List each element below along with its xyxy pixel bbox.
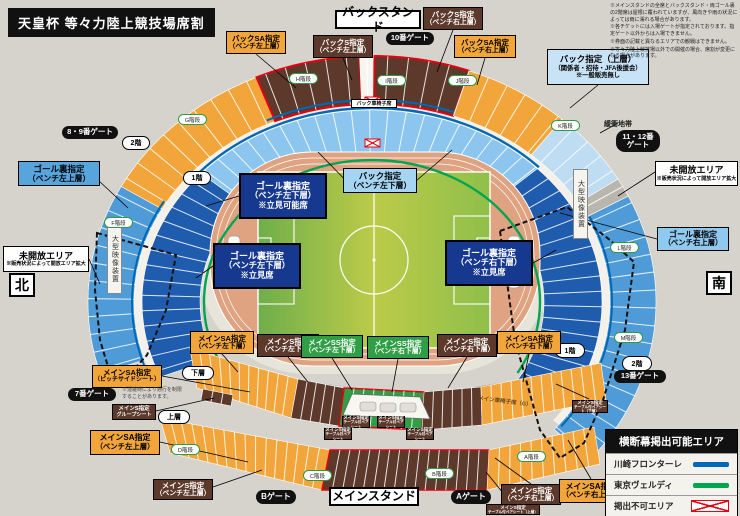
label-main-sa-left-upper: メインSA指定（ベンチ左上層） (90, 430, 160, 455)
label-unopened-left-line: 未開放エリア (19, 251, 73, 262)
note-line: ※等々力陸上競技場以外での開催の場合、席割が変更になる場合があります。 (610, 47, 738, 61)
stair-m-label: M階段 (621, 334, 637, 342)
banner-legend: 横断幕掲出可能エリア 川崎フロンターレ 東京ヴェルディ 掲出不可エリア (605, 429, 738, 516)
gate-8-9: 8・9番ゲート (62, 126, 118, 139)
label-unopened-right-line: 未開放エリア (669, 165, 723, 176)
label-back-sa-left-upper-line: （ベンチ左上層） (228, 43, 283, 51)
stair-a: A階段 (517, 451, 546, 462)
stair-i: I階段 (377, 75, 406, 86)
label-main-sa-right-lower-line: （ベンチ右下層） (501, 343, 556, 351)
stair-d: D階段 (171, 444, 200, 455)
stair-l: L階段 (610, 242, 639, 253)
label-back-lower-line: （ベンチ左下層） (349, 181, 412, 190)
stair-h: H階段 (289, 73, 318, 84)
gate-a: Aゲート (451, 490, 491, 504)
buffer-zone-label: 緩衝地帯 (604, 119, 632, 129)
stair-j: J階段 (448, 75, 477, 86)
label-goal-upper-left: ゴール裏指定（ベンチ左上層） (18, 161, 100, 186)
label-back-lower-line: バック指定 (359, 171, 402, 181)
label-unopened-left-line: ※販売状況によって開放エリア拡大 (6, 261, 86, 267)
gate-7: 7番ゲート (68, 388, 116, 401)
label-main-sa-left-upper-line: （ベンチ左上層） (96, 443, 155, 452)
label-back-s-left-upper: バックS指定（ベンチ左上層） (313, 35, 373, 58)
stair-k-label: K階段 (558, 122, 573, 130)
label-goal-upper-left-line: ゴール裏指定 (33, 164, 84, 174)
label-goal-lower-left-a-line: ※立見可能席 (258, 201, 308, 211)
stair-j-label: J階段 (456, 77, 470, 85)
label-goal-lower-right: ゴール裏指定（ベンチ右下層）※立見席 (445, 240, 533, 286)
note-line: ※券面の記載と異なるエリアでの観戦はできません。 (610, 39, 738, 46)
label-back-s-right-upper-line: （ベンチ右上層） (425, 19, 480, 27)
buffer-zone-text: 緩衝地帯 (604, 121, 632, 128)
label-back-sa-right-upper-line: バックSA指定 (461, 38, 509, 47)
gate-11-12: 11・12番ゲート (616, 130, 660, 152)
label-main-s-left-upper: メインS指定（ベンチ左上層） (153, 479, 213, 500)
video-board-right-label: 大型映像装置 (576, 180, 586, 228)
label-main-sa-right-lower-line: メインSA指定 (505, 334, 553, 343)
stair-d-label: D階段 (178, 446, 193, 454)
label-main-sa-left-lower-line: （ベンチ左下層） (194, 343, 249, 351)
label-unopened-right: 未開放エリア※販売状況によって開放エリア拡大 (655, 161, 738, 186)
legend-prohibited-label: 掲出不可エリア (614, 500, 674, 512)
gate-b-line: Bゲート (261, 493, 291, 502)
label-goal-upper-right-line: （ベンチ右上層） (664, 239, 723, 248)
label-main-ss-left-lower-line: （ベンチ左下層） (304, 347, 359, 355)
tier-1f-right-label: 1階 (565, 346, 576, 356)
label-main-sa-left-lower-line: メインSA指定 (198, 334, 246, 343)
label-main-s-left-upper-line: メインS指定 (162, 481, 205, 490)
label-compass-south-line: 南 (712, 275, 726, 292)
label-goal-upper-right: ゴール裏指定（ベンチ右上層） (657, 227, 729, 251)
frontale-line-swatch (693, 462, 729, 467)
legend-verdy-label: 東京ヴェルディ (614, 479, 673, 491)
label-main-ss-left-lower: メインSS指定（ベンチ左下層） (301, 335, 363, 358)
label-back-sa-left-upper-line: バックSA指定 (232, 34, 280, 43)
tier-lower-label: 下層 (191, 368, 205, 378)
tier-2f-left: 2階 (122, 136, 150, 150)
label-main-s-pair-lower-right: メインS指定テーブル付ペアシート（下層） (572, 400, 608, 413)
no-banner-mark (365, 139, 380, 147)
stair-a-label: A階段 (524, 453, 539, 461)
legend-row-frontale: 川崎フロンターレ (606, 453, 737, 474)
tier-1f-left: 1階 (183, 171, 211, 185)
label-back-lower: バック指定（ベンチ左下層） (343, 168, 417, 193)
label-main-s-group: メインS指定グループシート (112, 404, 156, 420)
label-back-wheelchair-line: バック車椅子席 (356, 101, 391, 107)
gate-a-line: Aゲート (456, 493, 486, 502)
label-back-s-left-upper-line: （ベンチ左上層） (315, 47, 370, 55)
label-goal-lower-left-b: ゴール裏指定（ベンチ左下層）※立見席 (213, 243, 301, 289)
vip-room (360, 402, 376, 411)
label-main-s-pair-lower-right-line: テーブル付ペアシート（下層） (573, 405, 607, 414)
stair-c-label: C階段 (310, 472, 325, 480)
note-line: ※メインスタンドの全席とバックスタンド・両ゴール裏の2階席は屋根に覆われています… (610, 3, 738, 23)
label-goal-lower-left-a-line: （ベンチ左下層） (250, 191, 316, 201)
label-main-s-pair-3-line: テーブル付ペアシート (325, 432, 351, 441)
prohibited-crosshatch-swatch (691, 500, 729, 512)
stair-h-label: H階段 (296, 75, 311, 83)
label-main-s-pair-2-line: テーブル付ペアシート (378, 420, 404, 429)
page-title: 天皇杯 等々力陸上競技場席割 (8, 8, 215, 37)
label-backstand-line: バックスタンド (337, 5, 419, 34)
legend-frontale-label: 川崎フロンターレ (614, 458, 682, 470)
tier-upper: 上層 (158, 410, 190, 424)
congestion-note-line: することがあります。 (122, 394, 182, 401)
label-compass-south: 南 (706, 271, 732, 295)
legend-row-prohibited: 掲出不可エリア (606, 495, 737, 516)
label-main-s-pair-2: メインS指定テーブル付ペアシート (377, 416, 405, 428)
label-main-s-left-upper-line: （ベンチ左上層） (155, 490, 210, 498)
video-board-left: 大型映像装置 (107, 224, 122, 294)
label-mainstand-line: メインスタンド (332, 489, 416, 503)
label-main-ss-right-lower-line: （ベンチ右下層） (370, 348, 425, 356)
label-main-s-pair-upper-line: テーブル付ペアシート（上層） (488, 510, 538, 514)
label-back-sa-right-upper: バックSA指定（ベンチ右上層） (454, 35, 516, 58)
label-main-s-right-lower-line: （ベンチ右下層） (439, 346, 494, 354)
label-goal-lower-left-a-line: ゴール裏指定 (256, 181, 310, 192)
stair-g-label: G階段 (185, 116, 200, 124)
label-main-ss-right-lower: メインSS指定（ベンチ右下層） (367, 336, 429, 359)
vip-room (400, 403, 416, 412)
label-main-s-right-upper-line: メインS指定 (510, 486, 553, 495)
tier-1f-left-label: 1階 (192, 173, 203, 183)
vip-room (380, 403, 396, 412)
label-main-ss-left-lower-line: メインSS指定 (308, 338, 356, 347)
label-main-sa-pitchside-line: （ピッチサイドシート） (94, 377, 160, 384)
label-goal-lower-right-line: ※立見席 (472, 268, 505, 278)
tier-upper-label: 上層 (167, 412, 181, 422)
label-main-s-group-line: グループシート (116, 412, 151, 418)
gate-11-12-line: ゲート (627, 141, 650, 149)
tier-2f-right-label: 2階 (632, 359, 643, 369)
label-goal-lower-left-a: ゴール裏指定（ベンチ左下層）※立見可能席 (239, 173, 327, 219)
gate-10: 10番ゲート (386, 32, 434, 45)
stair-k: K階段 (551, 120, 580, 131)
label-back-upper-reserved-line: （関係者・招待・JFA後援会） (554, 65, 641, 73)
gate-8-9-line: 8・9番ゲート (67, 128, 113, 136)
label-mainstand: メインスタンド (329, 487, 419, 506)
label-goal-lower-left-b-line: ※立見席 (240, 271, 273, 281)
stair-g: G階段 (178, 114, 207, 125)
stair-m: M階段 (614, 332, 643, 343)
label-goal-lower-left-b-line: （ベンチ左下層） (224, 261, 290, 271)
label-back-sa-left-upper: バックSA指定（ベンチ左上層） (226, 31, 286, 54)
stair-b: B階段 (425, 468, 454, 479)
label-main-s-right-upper-line: （ベンチ右上層） (503, 495, 558, 503)
tier-2f-left-label: 2階 (131, 138, 142, 148)
stair-l-label: L階段 (617, 244, 631, 252)
label-goal-lower-right-line: ゴール裏指定 (462, 248, 516, 259)
tier-2f-right: 2階 (622, 356, 652, 371)
stair-b-label: B階段 (432, 470, 447, 478)
gate-13: 13番ゲート (614, 370, 666, 383)
congestion-note: ※混雑時により通行を制限することがあります。 (122, 387, 182, 400)
label-main-sa-pitchside: メインSA指定（ピッチサイドシート） (92, 365, 162, 388)
label-unopened-right-line: ※販売状況によって開放エリア拡大 (657, 176, 737, 182)
label-backstand: バックスタンド (335, 10, 421, 29)
leader-line (618, 172, 655, 196)
note-line: ※各チケットには入場ゲートが指定されております。指定ゲート以外からは入場できませ… (610, 24, 738, 38)
notes-block: ※メインスタンドの全席とバックスタンド・両ゴール裏の2階席は屋根に覆われています… (610, 3, 738, 61)
label-main-s-pair-3: メインS指定テーブル付ペアシート (324, 428, 352, 440)
label-main-sa-left-lower: メインSA指定（ベンチ左下層） (190, 331, 254, 354)
label-compass-north: 北 (9, 273, 35, 297)
stair-f-label: F階段 (111, 219, 125, 227)
label-main-s-right-lower-line: メインS指定 (446, 337, 489, 346)
label-back-upper-reserved-line: ※一般販売無し (576, 72, 620, 80)
label-main-ss-right-lower-line: メインSS指定 (374, 339, 422, 348)
label-main-s-right-lower: メインS指定（ベンチ右下層） (437, 334, 497, 357)
seat-map-canvas: 天皇杯 等々力陸上競技場席割 ※メインスタンドの全席とバックスタンド・両ゴール裏… (0, 0, 740, 516)
stair-i-label: I階段 (385, 77, 398, 85)
stair-c: C階段 (303, 470, 332, 481)
legend-row-verdy: 東京ヴェルディ (606, 474, 737, 495)
verdy-line-swatch (693, 483, 729, 488)
video-board-left-label: 大型映像装置 (110, 235, 120, 283)
gate-7-line: 7番ゲート (75, 390, 109, 398)
label-goal-lower-left-b-line: ゴール裏指定 (230, 251, 284, 262)
label-back-s-right-upper: バックS指定（ベンチ右上層） (423, 7, 483, 30)
label-main-s-pair-upper: メインS指定テーブル付ペアシート（上層） (486, 504, 540, 515)
leader-line (213, 470, 262, 487)
label-main-s-right-upper: メインS指定（ベンチ右上層） (501, 484, 561, 505)
label-goal-upper-left-line: （ベンチ左上層） (28, 174, 91, 183)
gate-10-line: 10番ゲート (391, 34, 429, 42)
label-unopened-left: 未開放エリア※販売状況によって開放エリア拡大 (3, 246, 89, 272)
congestion-note-line: ※混雑時により通行を制限 (122, 387, 182, 394)
leader-line (570, 85, 598, 108)
video-board-right: 大型映像装置 (573, 169, 588, 239)
label-main-s-pair-4-line: テーブル付ペアシート (407, 432, 433, 441)
label-back-sa-right-upper-line: （ベンチ右上層） (457, 47, 512, 55)
banner-legend-title: 横断幕掲出可能エリア (606, 430, 737, 453)
gate-13-line: 13番ゲート (621, 372, 659, 380)
label-back-wheelchair: バック車椅子席 (351, 99, 397, 108)
stair-f: F階段 (104, 217, 133, 228)
label-back-s-left-upper-line: バックS指定 (322, 38, 365, 47)
label-goal-lower-right-line: （ベンチ右下層） (456, 258, 522, 268)
tier-lower: 下層 (182, 366, 214, 380)
gate-b: Bゲート (256, 490, 296, 504)
label-main-s-pair-4: メインS指定テーブル付ペアシート (406, 428, 434, 440)
centre-spot (372, 258, 375, 261)
label-compass-north-line: 北 (15, 277, 29, 294)
label-main-sa-right-lower: メインSA指定（ベンチ右下層） (497, 331, 561, 354)
label-back-s-right-upper-line: バックS指定 (432, 10, 475, 19)
